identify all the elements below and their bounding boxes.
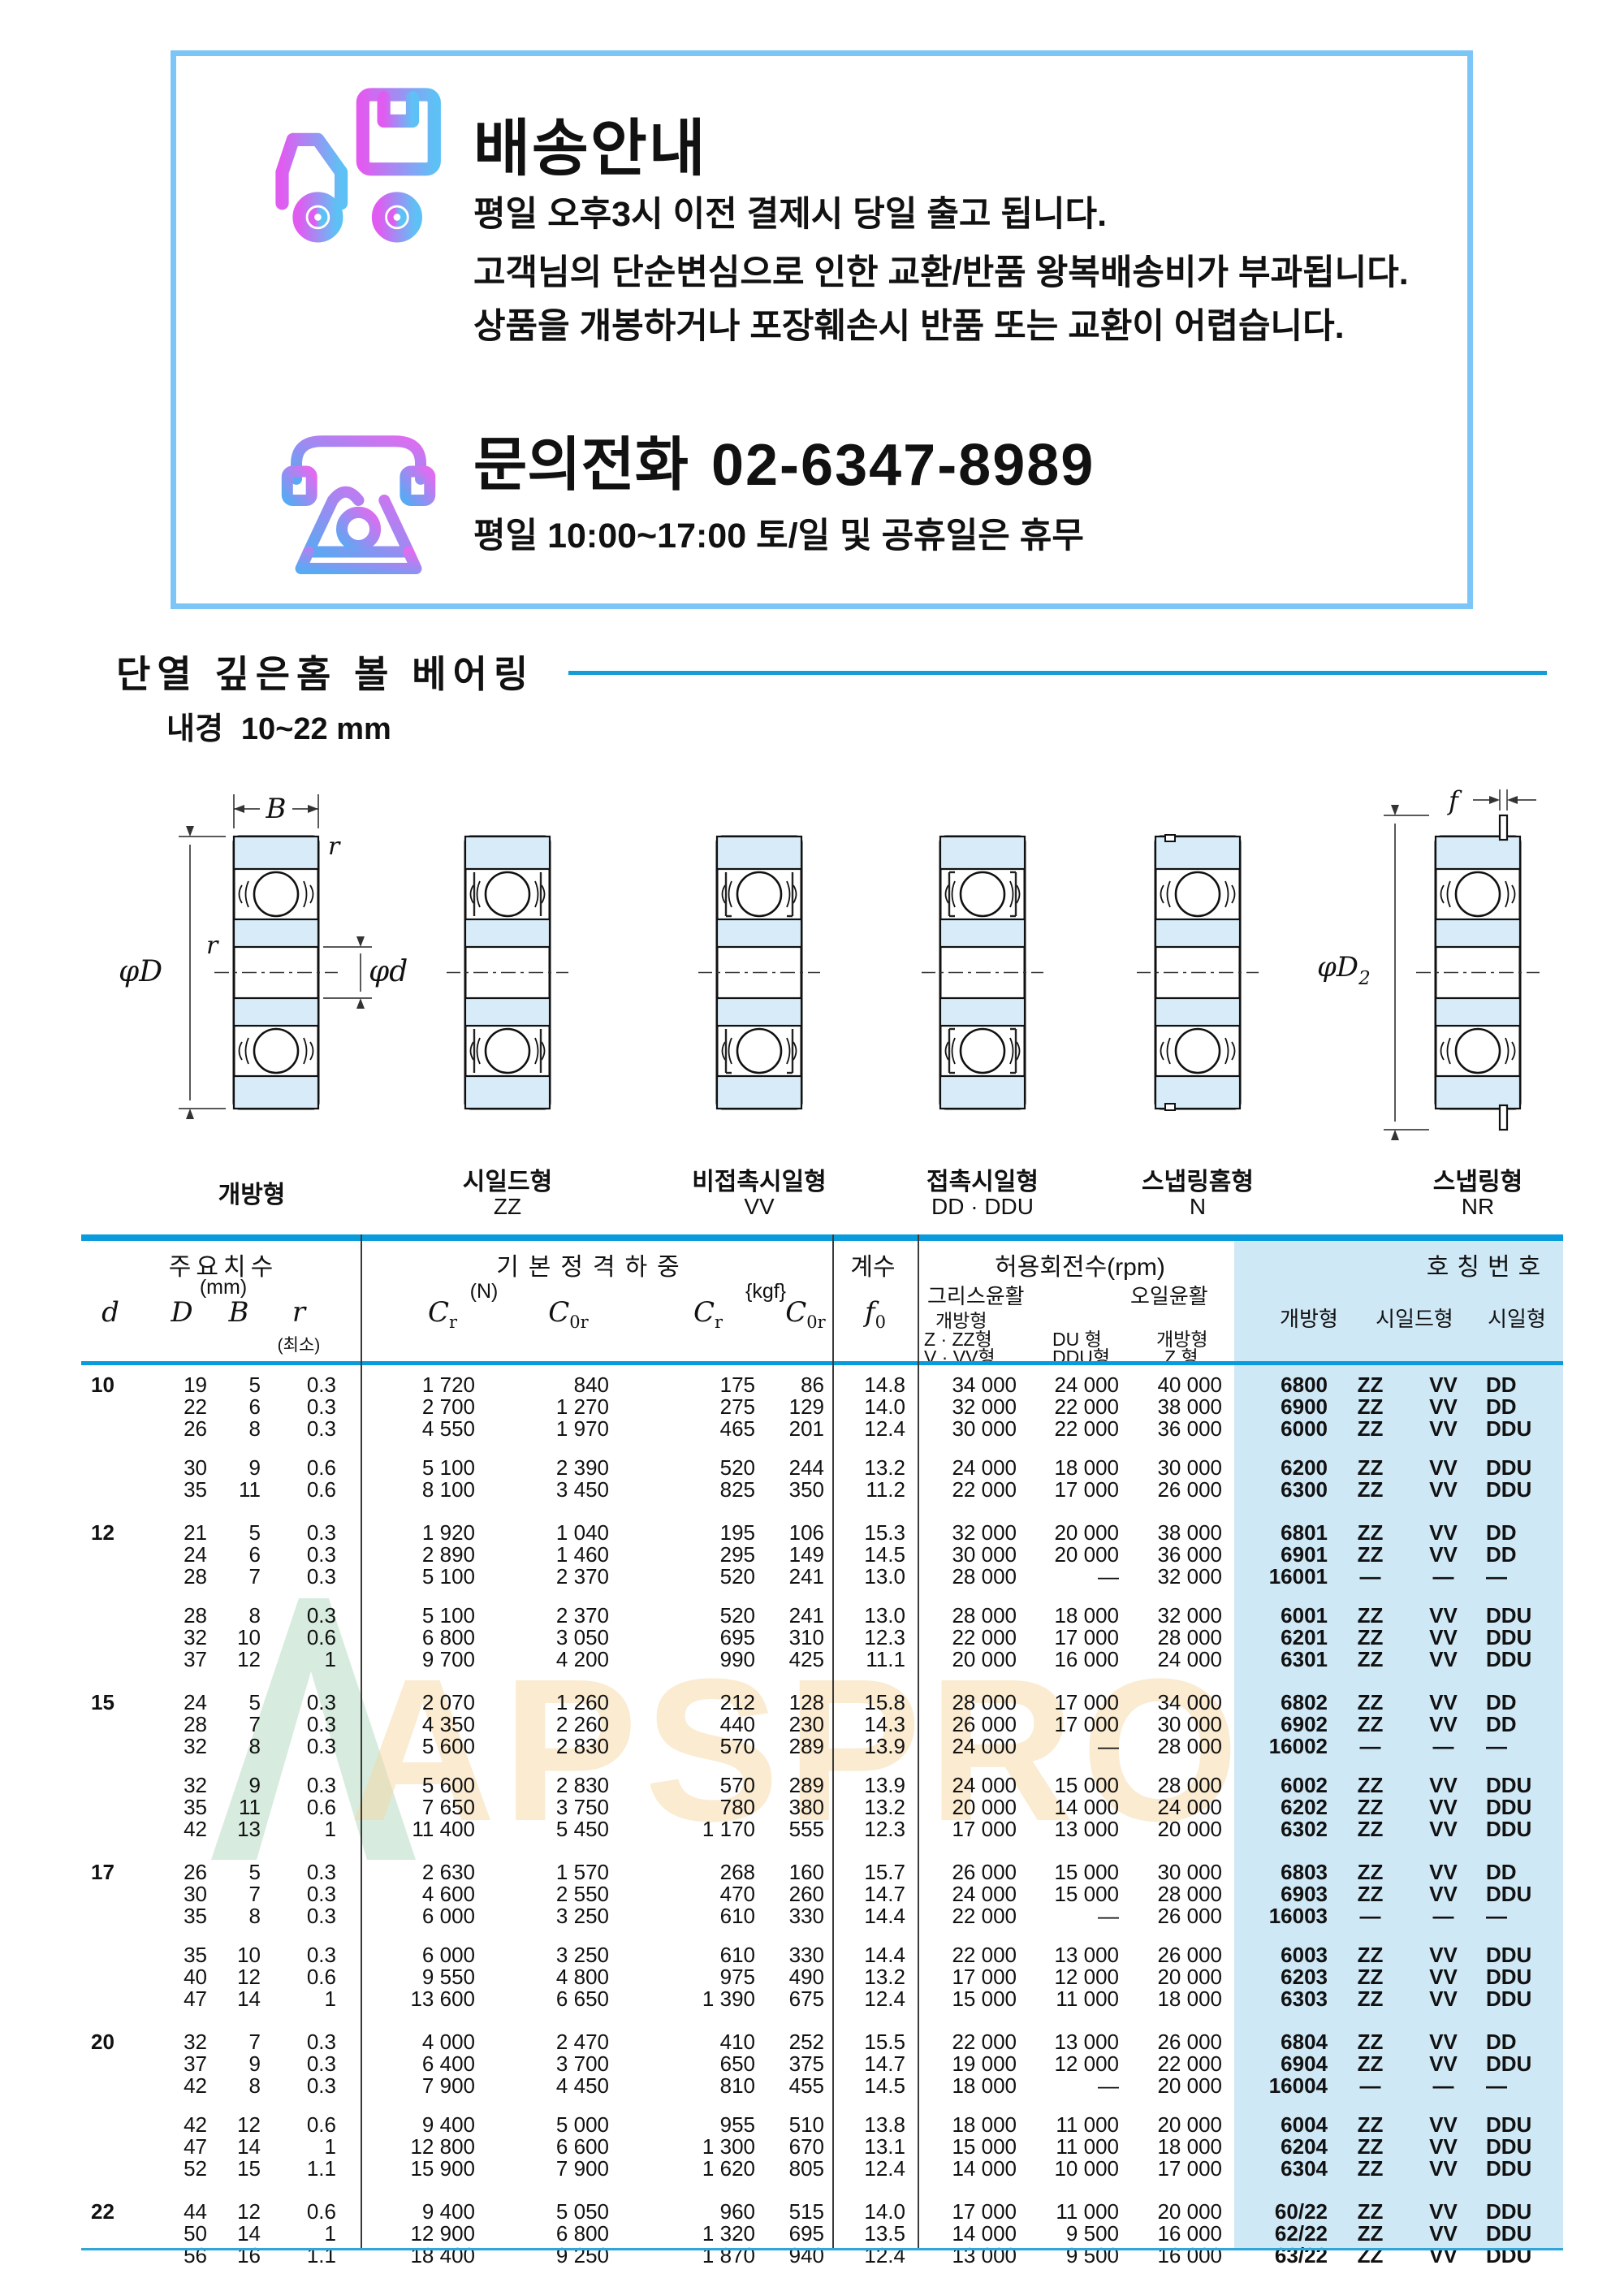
table-cell: 13.8: [828, 2114, 909, 2136]
table-cell: ZZ: [1332, 1714, 1409, 1736]
table-cell: ZZ: [1332, 1861, 1409, 1883]
table-cell: 425: [759, 1649, 828, 1671]
table-cell: [81, 1905, 133, 1927]
phone-number: 02-6347-8989: [711, 433, 1095, 498]
table-cell: VV: [1409, 1796, 1478, 1818]
table-cell: 35: [133, 1796, 211, 1818]
table-cell: 5 100: [361, 1457, 479, 1479]
table-cell: 20 000: [1123, 2075, 1226, 2097]
table-cell: VV: [1409, 1861, 1478, 1883]
table-cell: 149: [759, 1544, 828, 1566]
table-cell: 0.3: [265, 2075, 361, 2097]
phone-icon: [274, 423, 444, 577]
table-cell: [81, 1457, 133, 1479]
table-cell: 805: [759, 2158, 828, 2180]
table-cell: 30 000: [1123, 1861, 1226, 1883]
table-cell: 9 400: [361, 2114, 479, 2136]
table-cell: 13.2: [828, 1796, 909, 1818]
table-cell: 241: [759, 1566, 828, 1588]
table-cell: VV: [1409, 1883, 1478, 1905]
table-cell: 1 970: [479, 1418, 613, 1440]
table-cell: [81, 1883, 133, 1905]
table-cell: 6301: [1226, 1649, 1332, 1671]
table-cell: 13.5: [828, 2223, 909, 2245]
table-cell: 1 320: [613, 2223, 759, 2245]
table-cell: [81, 1605, 133, 1627]
table-cell: DDU: [1478, 2158, 1551, 2180]
table-cell: [81, 1966, 133, 1988]
table-cell: ZZ: [1332, 1396, 1409, 1418]
header-sym-Cr-kgf: Cr: [667, 1296, 749, 1332]
table-cell: 160: [759, 1861, 828, 1883]
table-cell: 26: [133, 1418, 211, 1440]
table-cell: 295: [613, 1544, 759, 1566]
table-cell: 15 000: [1021, 1861, 1123, 1883]
table-cell: 24: [133, 1544, 211, 1566]
table-cell: 1 460: [479, 1544, 613, 1566]
table-cell: 289: [759, 1775, 828, 1796]
table-row: 101950.31 7208401758614.834 00024 00040 …: [81, 1374, 1563, 1396]
table-cell: 15 900: [361, 2158, 479, 2180]
table-cell: 0.3: [265, 1944, 361, 1966]
table-cell: 62/22: [1226, 2223, 1332, 2245]
table-cell: [81, 1796, 133, 1818]
table-cell: VV: [1409, 1396, 1478, 1418]
table-cell: DD: [1478, 1714, 1551, 1736]
table-cell: 32: [133, 1736, 211, 1757]
table-cell: [81, 1418, 133, 1440]
table-cell: [81, 1566, 133, 1588]
table-cell: 22 000: [909, 1627, 1021, 1649]
table-row: 172650.32 6301 57026816015.726 00015 000…: [81, 1861, 1563, 1883]
table-cell: 42: [133, 1818, 211, 1840]
table-cell: DDU: [1478, 1649, 1551, 1671]
table-cell: 8: [211, 2075, 265, 2097]
table-cell: 175: [613, 1374, 759, 1396]
table-cell: ZZ: [1332, 1418, 1409, 1440]
table-cell: 610: [613, 1944, 759, 1966]
table-cell: VV: [1409, 2053, 1478, 2075]
table-row: 3280.35 6002 83057028913.924 000—28 0001…: [81, 1736, 1563, 1757]
table-cell: 14.4: [828, 1905, 909, 1927]
table-cell: 11 400: [361, 1818, 479, 1840]
table-cell: 9: [211, 2053, 265, 2075]
table-cell: 380: [759, 1796, 828, 1818]
table-cell: 10 000: [1021, 2158, 1123, 2180]
table-cell: 37: [133, 2053, 211, 2075]
table-cell: 30 000: [1123, 1457, 1226, 1479]
diagram-code-shielded: ZZ: [394, 1194, 621, 1220]
table-cell: 60/22: [1226, 2201, 1332, 2223]
table-cell: 8: [211, 1605, 265, 1627]
table-cell: 32: [133, 2031, 211, 2053]
table-cell: 14.3: [828, 1714, 909, 1736]
table-cell: 9 700: [361, 1649, 479, 1671]
table-cell: 1 720: [361, 1374, 479, 1396]
table-cell: 22 000: [909, 1944, 1021, 1966]
table-cell: 1: [265, 1649, 361, 1671]
table-cell: 13 000: [1021, 1944, 1123, 1966]
table-cell: 6004: [1226, 2114, 1332, 2136]
table-cell: ZZ: [1332, 1775, 1409, 1796]
table-cell: [81, 1714, 133, 1736]
table-cell: 2 830: [479, 1736, 613, 1757]
table-cell: [81, 1988, 133, 2010]
table-cell: 47: [133, 1988, 211, 2010]
table-cell: —: [1478, 1566, 1551, 1588]
table-cell: 21: [133, 1522, 211, 1544]
header-type-open: 개방형: [1252, 1303, 1366, 1333]
table-cell: [81, 1479, 133, 1501]
table-cell: —: [1409, 1736, 1478, 1757]
table-cell: 4 200: [479, 1649, 613, 1671]
table-cell: 5 600: [361, 1775, 479, 1796]
table-cell: 12 000: [1021, 1966, 1123, 1988]
bearing-diagram-shielded: [447, 772, 568, 1153]
table-cell: 17 000: [909, 2201, 1021, 2223]
table-cell: 1 300: [613, 2136, 759, 2158]
bore-value: 10~22 mm: [241, 712, 391, 746]
svg-text:f: f: [1447, 785, 1462, 816]
table-cell: 0.6: [265, 2114, 361, 2136]
header-r-min: (최소): [258, 1332, 339, 1356]
svg-text:φD2: φD2: [1317, 951, 1371, 989]
table-row: 3290.35 6002 83057028913.924 00015 00028…: [81, 1775, 1563, 1796]
diagram-label-snapring: 스냅링형: [1364, 1161, 1592, 1197]
table-row: 2244120.69 4005 05096051514.017 00011 00…: [81, 2201, 1563, 2223]
table-cell: 13.2: [828, 1457, 909, 1479]
table-cell: 490: [759, 1966, 828, 1988]
table-cell: 30 000: [1123, 1714, 1226, 1736]
table-cell: —: [1021, 1736, 1123, 1757]
table-cell: 18 000: [909, 2114, 1021, 2136]
table-cell: [81, 2114, 133, 2136]
table-cell: —: [1332, 1566, 1409, 1588]
table-cell: 6302: [1226, 1818, 1332, 1840]
table-cell: 9 500: [1021, 2223, 1123, 2245]
diagram-code-snapring: NR: [1364, 1194, 1592, 1220]
table-cell: DDU: [1478, 2201, 1551, 2223]
table-cell: 15 000: [1021, 1883, 1123, 1905]
table-cell: 12 800: [361, 2136, 479, 2158]
table-cell: 6200: [1226, 1457, 1332, 1479]
table-cell: 2 890: [361, 1544, 479, 1566]
table-cell: VV: [1409, 1544, 1478, 1566]
table-divider-2: [832, 1234, 834, 2250]
table-cell: 7 650: [361, 1796, 479, 1818]
table-cell: 13: [211, 1818, 265, 1840]
table-cell: 2 260: [479, 1714, 613, 1736]
table-cell: VV: [1409, 1649, 1478, 1671]
table-row: 2880.35 1002 37052024113.028 00018 00032…: [81, 1605, 1563, 1627]
table-cell: [81, 1775, 133, 1796]
table-divider-1: [361, 1234, 362, 2250]
notice-line-1: 평일 오후3시 이전 결제시 당일 출고 됩니다.: [473, 186, 1107, 236]
table-cell: 5 050: [479, 2201, 613, 2223]
table-cell: 2 370: [479, 1605, 613, 1627]
table-cell: 675: [759, 1988, 828, 2010]
bearing-diagram-snapring-groove: [1137, 772, 1259, 1153]
diagram-code-snapring-groove: N: [1084, 1194, 1311, 1220]
table-cell: 6903: [1226, 1883, 1332, 1905]
diagram-label-noncontact: 비접촉시일형: [646, 1161, 873, 1197]
table-cell: 1 270: [479, 1396, 613, 1418]
table-cell: 8: [211, 1736, 265, 1757]
table-cell: DDU: [1478, 1775, 1551, 1796]
table-row: 3070.34 6002 55047026014.724 00015 00028…: [81, 1883, 1563, 1905]
bearing-diagram-snapring: fφD2: [1315, 772, 1608, 1153]
table-cell: 12.4: [828, 1418, 909, 1440]
table-cell: 14.5: [828, 1544, 909, 1566]
table-cell: 1 620: [613, 2158, 759, 2180]
table-row: 2260.32 7001 27027512914.032 00022 00038…: [81, 1396, 1563, 1418]
table-cell: 6904: [1226, 2053, 1332, 2075]
table-cell: 6: [211, 1544, 265, 1566]
table-cell: 3 750: [479, 1796, 613, 1818]
table-cell: [81, 2053, 133, 2075]
table-cell: VV: [1409, 1714, 1478, 1736]
table-cell: 289: [759, 1736, 828, 1757]
table-cell: 520: [613, 1566, 759, 1588]
table-cell: 13.1: [828, 2136, 909, 2158]
table-cell: ZZ: [1332, 1374, 1409, 1396]
section-rule: [568, 671, 1547, 675]
table-cell: 17 000: [1021, 1479, 1123, 1501]
table-cell: 5 450: [479, 1818, 613, 1840]
table-cell: 52: [133, 2158, 211, 2180]
table-cell: 0.3: [265, 1418, 361, 1440]
table-cell: 244: [759, 1457, 828, 1479]
table-cell: 12.4: [828, 2158, 909, 2180]
table-cell: 40: [133, 1966, 211, 1988]
table-cell: 1 260: [479, 1692, 613, 1714]
table-cell: 6303: [1226, 1988, 1332, 2010]
table-row: 203270.34 0002 47041025215.522 00013 000…: [81, 2031, 1563, 2053]
table-cell: 19: [133, 1374, 211, 1396]
table-cell: 20 000: [1123, 1966, 1226, 1988]
table-cell: 20 000: [1123, 2201, 1226, 2223]
table-cell: 5 100: [361, 1566, 479, 1588]
table-cell: 0.3: [265, 1714, 361, 1736]
table-cell: 20 000: [909, 1796, 1021, 1818]
table-cell: 13.9: [828, 1775, 909, 1796]
table-cell: 16004: [1226, 2075, 1332, 2097]
table-cell: [81, 2158, 133, 2180]
table-cell: 19 000: [909, 2053, 1021, 2075]
table-cell: 34 000: [1123, 1692, 1226, 1714]
table-cell: 24 000: [909, 1775, 1021, 1796]
table-row: 371219 7004 20099042511.120 00016 00024 …: [81, 1649, 1563, 1671]
table-cell: —: [1478, 1905, 1551, 1927]
table-cell: 0.3: [265, 2031, 361, 2053]
table-cell: 650: [613, 2053, 759, 2075]
table-cell: VV: [1409, 1944, 1478, 1966]
table-cell: 22 000: [1123, 2053, 1226, 2075]
table-cell: 1 170: [613, 1818, 759, 1840]
table-cell: 26 000: [909, 1714, 1021, 1736]
table-cell: 330: [759, 1905, 828, 1927]
table-cell: VV: [1409, 1479, 1478, 1501]
table-cell: 26 000: [1123, 1905, 1226, 1927]
table-cell: 15: [81, 1692, 133, 1714]
shipping-notice-box: 배송안내 평일 오후3시 이전 결제시 당일 출고 됩니다. 고객님의 단순변심…: [171, 50, 1473, 609]
table-cell: 12 000: [1021, 2053, 1123, 2075]
svg-text:r: r: [328, 832, 341, 861]
table-cell: 30: [133, 1883, 211, 1905]
header-factor: 계수: [832, 1247, 914, 1282]
table-cell: 9 400: [361, 2201, 479, 2223]
table-cell: 6003: [1226, 1944, 1332, 1966]
table-cell: 310: [759, 1627, 828, 1649]
table-cell: 2 070: [361, 1692, 479, 1714]
table-cell: 20 000: [1021, 1522, 1123, 1544]
header-sym-C0r-kgf: C0r: [765, 1296, 846, 1332]
table-cell: 30 000: [909, 1418, 1021, 1440]
table-cell: DDU: [1478, 2053, 1551, 2075]
table-cell: 9: [211, 1775, 265, 1796]
table-cell: DDU: [1478, 1796, 1551, 1818]
table-cell: DDU: [1478, 2114, 1551, 2136]
table-cell: 520: [613, 1605, 759, 1627]
table-cell: 40 000: [1123, 1374, 1226, 1396]
table-cell: 6900: [1226, 1396, 1332, 1418]
table-cell: 24 000: [1123, 1796, 1226, 1818]
table-cell: ZZ: [1332, 1692, 1409, 1714]
table-cell: DDU: [1478, 1944, 1551, 1966]
table-cell: 6 650: [479, 1988, 613, 2010]
table-cell: 13 000: [1021, 2031, 1123, 2053]
table-cell: 14.4: [828, 1944, 909, 1966]
table-cell: ZZ: [1332, 1796, 1409, 1818]
table-cell: 28: [133, 1605, 211, 1627]
table-cell: 18 000: [1021, 1605, 1123, 1627]
table-cell: VV: [1409, 1627, 1478, 1649]
table-row: 4714112 8006 6001 30067013.115 00011 000…: [81, 2136, 1563, 2158]
header-number: 호칭번호: [1366, 1247, 1609, 1282]
table-cell: 26 000: [1123, 1944, 1226, 1966]
table-cell: 975: [613, 1966, 759, 1988]
table-cell: 5 600: [361, 1736, 479, 1757]
table-cell: 6001: [1226, 1605, 1332, 1627]
table-cell: 13 000: [1021, 1818, 1123, 1840]
table-cell: 15 000: [909, 1988, 1021, 2010]
table-cell: DD: [1478, 1861, 1551, 1883]
table-cell: 0.3: [265, 1905, 361, 1927]
table-cell: 20: [81, 2031, 133, 2053]
table-cell: 17 000: [909, 1966, 1021, 1988]
table-cell: 0.6: [265, 1457, 361, 1479]
table-cell: 1: [265, 2223, 361, 2245]
table-row: 4714113 6006 6501 39067512.415 00011 000…: [81, 1988, 1563, 2010]
table-cell: 6300: [1226, 1479, 1332, 1501]
header-sym-Cr-n: Cr: [402, 1296, 483, 1332]
table-cell: 28 000: [1123, 1775, 1226, 1796]
table-cell: DDU: [1478, 1818, 1551, 1840]
diagram-label-contact: 접촉시일형: [869, 1161, 1096, 1197]
table-cell: 960: [613, 2201, 759, 2223]
table-cell: ZZ: [1332, 1544, 1409, 1566]
table-cell: VV: [1409, 1775, 1478, 1796]
table-cell: 4 450: [479, 2075, 613, 2097]
table-cell: 6: [211, 1396, 265, 1418]
notice-line-2: 고객님의 단순변심으로 인한 교환/반품 왕복배송비가 부과됩니다.: [473, 244, 1409, 295]
table-cell: 7: [211, 1883, 265, 1905]
bearing-diagram-contact-seal: [922, 772, 1043, 1153]
table-cell: DDU: [1478, 1457, 1551, 1479]
table-cell: 11.2: [828, 1479, 909, 1501]
table-cell: VV: [1409, 1457, 1478, 1479]
table-cell: —: [1478, 2075, 1551, 2097]
table-cell: —: [1332, 2075, 1409, 2097]
table-cell: 0.6: [265, 1796, 361, 1818]
table-cell: DDU: [1478, 2223, 1551, 2245]
svg-text:B: B: [266, 793, 287, 825]
table-cell: 22 000: [909, 2031, 1021, 2053]
table-cell: 35: [133, 1905, 211, 1927]
table-cell: ZZ: [1332, 1988, 1409, 2010]
table-row: 122150.31 9201 04019510615.332 00020 000…: [81, 1522, 1563, 1544]
table-cell: 0.3: [265, 1396, 361, 1418]
table-cell: DDU: [1478, 1479, 1551, 1501]
table-cell: 129: [759, 1396, 828, 1418]
table-cell: 6801: [1226, 1522, 1332, 1544]
table-cell: 8: [211, 1905, 265, 1927]
table-cell: 6902: [1226, 1714, 1332, 1736]
table-cell: ZZ: [1332, 1883, 1409, 1905]
table-cell: 24 000: [1123, 1649, 1226, 1671]
table-cell: 1: [265, 1818, 361, 1840]
table-cell: 375: [759, 2053, 828, 2075]
table-cell: 38 000: [1123, 1522, 1226, 1544]
svg-text:φD: φD: [119, 955, 162, 988]
table-cell: DDU: [1478, 2136, 1551, 2158]
table-cell: 11 000: [1021, 1988, 1123, 2010]
table-cell: 24 000: [909, 1736, 1021, 1757]
table-cell: VV: [1409, 2158, 1478, 2180]
header-type-sealed: 시일형: [1460, 1303, 1574, 1333]
table-cell: 28 000: [909, 1692, 1021, 1714]
table-cell: 0.3: [265, 1566, 361, 1588]
table-cell: 17 000: [1123, 2158, 1226, 2180]
svg-text:φd: φd: [369, 955, 408, 988]
table-cell: VV: [1409, 1605, 1478, 1627]
table-cell: 6800: [1226, 1374, 1332, 1396]
table-cell: 20 000: [909, 1649, 1021, 1671]
table-cell: 9: [211, 1457, 265, 1479]
table-cell: 17 000: [1021, 1714, 1123, 1736]
table-cell: 6203: [1226, 1966, 1332, 1988]
table-cell: 12: [211, 2201, 265, 2223]
table-cell: VV: [1409, 1522, 1478, 1544]
table-cell: VV: [1409, 2136, 1478, 2158]
table-cell: 15 000: [909, 2136, 1021, 2158]
table-cell: [81, 1736, 133, 1757]
bore-label: 내경: [166, 712, 223, 746]
table-row: 152450.32 0701 26021212815.828 00017 000…: [81, 1692, 1563, 1714]
table-divider-3: [918, 1234, 919, 2250]
table-cell: 14.5: [828, 2075, 909, 2097]
table-cell: 12.3: [828, 1818, 909, 1840]
table-cell: 1 920: [361, 1522, 479, 1544]
table-cell: 22 000: [909, 1479, 1021, 1501]
table-cell: 6804: [1226, 2031, 1332, 2053]
table-cell: 268: [613, 1861, 759, 1883]
table-cell: 695: [613, 1627, 759, 1649]
table-cell: 34 000: [909, 1374, 1021, 1396]
table-cell: 1 570: [479, 1861, 613, 1883]
table-cell: 410: [613, 2031, 759, 2053]
table-cell: 18 000: [1123, 1988, 1226, 2010]
